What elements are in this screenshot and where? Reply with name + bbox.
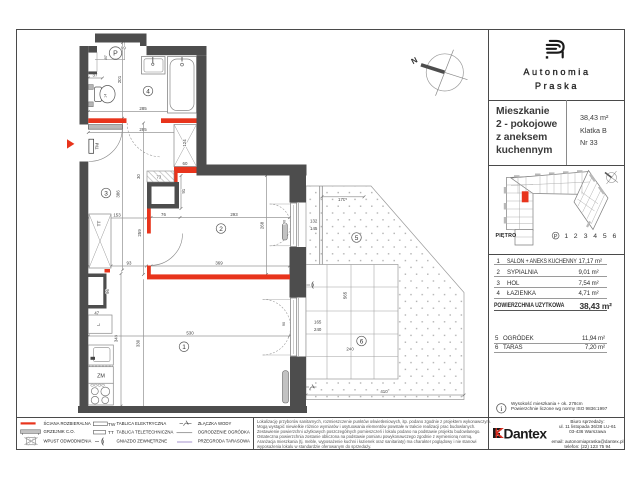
svg-text:268: 268 (260, 221, 265, 229)
svg-text:6: 6 (360, 338, 364, 345)
svg-text:145: 145 (310, 226, 318, 231)
svg-text:ZŁĄCZKA WODY: ZŁĄCZKA WODY (198, 421, 232, 426)
svg-text:87: 87 (103, 54, 108, 59)
svg-text:2: 2 (574, 233, 578, 240)
svg-text:330: 330 (136, 339, 141, 347)
svg-text:OGRODZENIE OGRÓDKA: OGRODZENIE OGRÓDKA (198, 429, 250, 434)
svg-text:165: 165 (314, 320, 322, 325)
svg-text:14: 14 (104, 94, 108, 98)
svg-text:GRZEJNIK C.O.: GRZEJNIK C.O. (44, 429, 75, 434)
svg-text:N: N (410, 55, 420, 66)
svg-text:P: P (554, 234, 558, 240)
svg-text:1: 1 (182, 344, 186, 351)
svg-text:TABLICA TELETECHNICZNA: TABLICA TELETECHNICZNA (117, 429, 174, 434)
svg-text:3: 3 (584, 233, 588, 240)
svg-text:90: 90 (283, 220, 287, 224)
svg-text:99: 99 (121, 46, 126, 51)
svg-text:201: 201 (117, 75, 122, 83)
svg-text:259: 259 (137, 229, 142, 237)
svg-text:2: 2 (219, 226, 223, 233)
svg-text:565: 565 (343, 291, 348, 299)
svg-text:4: 4 (593, 233, 597, 240)
svg-text:GNIAZDO ZEWNĘTRZNE: GNIAZDO ZEWNĘTRZNE (117, 439, 168, 444)
svg-text:240: 240 (346, 347, 354, 352)
svg-text:PRZEGRODA TARASOWA: PRZEGRODA TARASOWA (198, 439, 250, 444)
svg-text:293: 293 (230, 212, 238, 217)
svg-text:WPUST ODWODNIENIA: WPUST ODWODNIENIA (44, 439, 92, 444)
svg-text:6: 6 (613, 233, 617, 240)
svg-text:3: 3 (104, 190, 108, 197)
svg-text:240: 240 (314, 327, 322, 332)
svg-text:76: 76 (161, 212, 166, 217)
svg-text:285: 285 (139, 106, 147, 111)
svg-text:TM: TM (95, 143, 100, 150)
svg-text:73: 73 (156, 174, 161, 179)
svg-text:93: 93 (127, 260, 132, 265)
svg-text:124: 124 (182, 139, 187, 147)
svg-text:i: i (500, 404, 502, 413)
svg-text:TW: TW (108, 422, 116, 428)
svg-text:91: 91 (181, 188, 186, 193)
svg-text:410: 410 (380, 389, 388, 394)
svg-text:P: P (113, 51, 118, 58)
svg-text:TABLICA ELEKTRYCZNA: TABLICA ELEKTRYCZNA (117, 421, 167, 426)
svg-text:96: 96 (105, 289, 110, 294)
svg-text:369: 369 (215, 260, 223, 265)
svg-text:153: 153 (113, 212, 121, 217)
svg-text:4: 4 (146, 88, 150, 95)
svg-text:386: 386 (116, 190, 121, 198)
svg-text:TT: TT (108, 430, 114, 436)
svg-text:5: 5 (355, 235, 359, 242)
svg-text:30: 30 (136, 174, 141, 179)
svg-text:132: 132 (310, 219, 318, 224)
svg-text:TT: TT (96, 221, 101, 227)
svg-text:5: 5 (603, 233, 607, 240)
svg-text:1: 1 (564, 233, 568, 240)
svg-text:L: L (96, 323, 101, 326)
svg-text:ŚCIANA ROZBIERALNA: ŚCIANA ROZBIERALNA (44, 421, 91, 426)
svg-text:90: 90 (282, 322, 286, 326)
svg-text:60: 60 (183, 161, 188, 166)
svg-text:349: 349 (114, 334, 119, 342)
svg-text:530: 530 (186, 330, 194, 335)
svg-text:ZM: ZM (97, 374, 105, 380)
